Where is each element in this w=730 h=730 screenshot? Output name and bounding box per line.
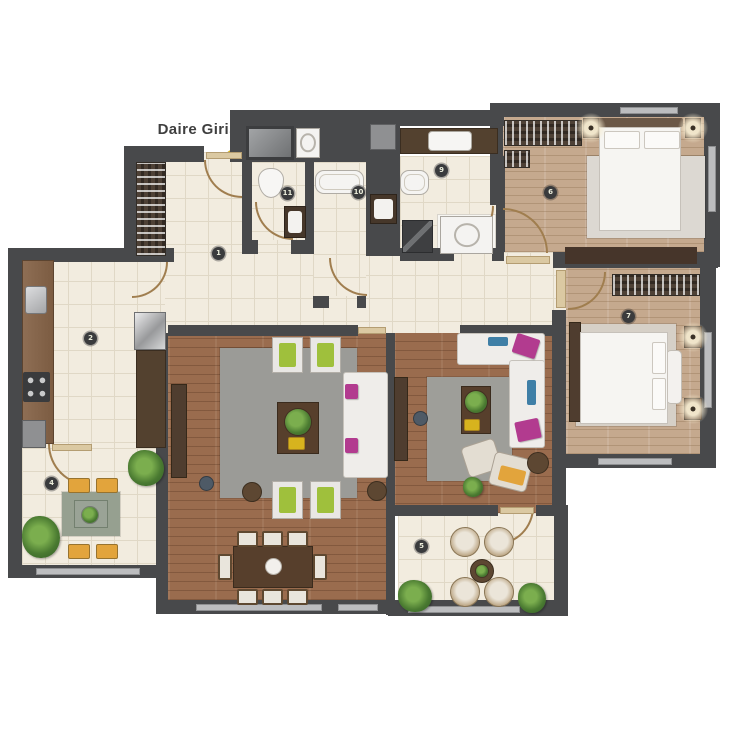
room-number-badge-balcony-right: 5 [415, 540, 428, 553]
balcony-plant [398, 580, 432, 612]
shaft-sink [370, 194, 397, 224]
window [620, 107, 678, 114]
sofa-pillow [488, 337, 508, 346]
dining-chair [218, 554, 232, 580]
window [598, 458, 672, 465]
dining-chair [287, 589, 308, 605]
bedroom-1-nightstand [583, 118, 599, 138]
room-number-badge-hall: 1 [212, 247, 225, 260]
wall-segment [554, 505, 568, 616]
salon-side-table [367, 481, 387, 501]
wall-segment [8, 248, 22, 578]
salon-armchair [310, 337, 341, 373]
wc-vanity [284, 206, 306, 238]
room-number-badge-bathroom: 10 [352, 186, 365, 199]
shaft-unit [370, 124, 396, 150]
bed-pillow [652, 378, 666, 410]
bedroom-1-wardrobe [504, 120, 582, 146]
wall-segment [313, 296, 329, 308]
salon-side-stool [199, 476, 214, 491]
kitchen-counter-2 [136, 350, 166, 448]
wall-segment [394, 505, 498, 516]
kitchen-sink [25, 286, 47, 314]
dining-chair [262, 589, 283, 605]
bedroom-1-door-sill [506, 256, 550, 264]
wall-segment [248, 240, 258, 254]
sofa-pillow [527, 380, 536, 405]
dining-chair [287, 531, 308, 547]
wall-segment [357, 296, 366, 308]
dining-centerpiece [265, 558, 282, 575]
bedroom-2-wardrobe [612, 274, 700, 296]
wall-segment [168, 325, 358, 336]
dining-chair [313, 554, 327, 580]
bathroom-3-tub [400, 170, 429, 195]
bedroom-2-nightstand [684, 326, 702, 348]
wall-segment [291, 240, 313, 254]
balcony-table-plant [476, 565, 488, 577]
wall-segment [490, 103, 503, 205]
room-number-badge-kitchen: 2 [84, 332, 97, 345]
balcony-right-sill [500, 507, 534, 514]
bathroom-3-sink [428, 131, 472, 151]
sitting-tray [464, 419, 480, 431]
sitting-side-stool [413, 411, 428, 426]
balcony-left-plant [128, 450, 164, 486]
bed-pillow [644, 131, 680, 149]
window [338, 604, 378, 611]
kitchen-stove [23, 372, 50, 402]
salon-tray [288, 437, 305, 450]
dining-chair [262, 531, 283, 547]
bathroom-3-shower [402, 220, 433, 253]
salon-side-table [242, 482, 262, 502]
room-number-badge-bedroom-1: 6 [544, 186, 557, 199]
sitting-plant [463, 477, 483, 497]
kitchen-oven [22, 420, 46, 448]
sofa-pillow [345, 384, 358, 399]
bed-pillow [652, 342, 666, 374]
bedroom-2-door-sill [556, 270, 566, 308]
room-number-badge-bathroom: 9 [435, 164, 448, 177]
bed-pillow [604, 131, 640, 149]
laundry-washer [440, 216, 493, 254]
shower-stall [246, 126, 294, 160]
balcony-left-plant [22, 516, 60, 558]
window [196, 604, 322, 611]
salon-armchair [272, 337, 303, 373]
wall-segment [128, 146, 204, 162]
wall-segment [552, 310, 566, 515]
wall-segment [124, 146, 136, 262]
salon-armchair [272, 481, 303, 519]
dining-chair [237, 531, 258, 547]
sitting-table-plant [465, 391, 487, 413]
entrance-sill [206, 152, 242, 159]
sofa-pillow [345, 438, 358, 453]
balcony-left-chair [96, 478, 118, 493]
balcony-left-sill [52, 444, 92, 451]
wall-segment [536, 505, 554, 516]
bedroom-1-headboard [597, 118, 683, 127]
bedroom-1-dresser [565, 247, 697, 264]
salon-table-plant [285, 409, 311, 435]
bedroom-2-headboard [666, 350, 682, 404]
salon-armchair [310, 481, 341, 519]
dining-chair [237, 589, 258, 605]
room-number-badge-wc: 11 [281, 187, 294, 200]
floor-plan: Daire Girişi 12111096745 [0, 0, 730, 730]
balcony-left-pot [82, 507, 98, 523]
salon-tv-unit [171, 384, 187, 478]
wall-segment [386, 513, 395, 615]
room-number-badge-balcony-left: 4 [45, 477, 58, 490]
washer-cabinet [296, 128, 320, 158]
sitting-basket-table [527, 452, 549, 474]
room-number-badge-bedroom-2: 7 [622, 310, 635, 323]
kitchen-fridge [134, 312, 166, 350]
bedroom-1-nightstand [685, 118, 701, 138]
bedroom-2-nightstand [684, 398, 702, 420]
balcony-left-chair [96, 544, 118, 559]
entry-wardrobe [136, 162, 166, 256]
bedroom-1-cabinet [504, 150, 530, 168]
sitting-tv-unit [394, 377, 408, 461]
balcony-left-chair [68, 544, 90, 559]
balcony-left-chair [68, 478, 90, 493]
window [36, 568, 140, 575]
salon-opening-sill [358, 327, 386, 334]
balcony-plant [518, 583, 546, 613]
window [708, 146, 716, 212]
